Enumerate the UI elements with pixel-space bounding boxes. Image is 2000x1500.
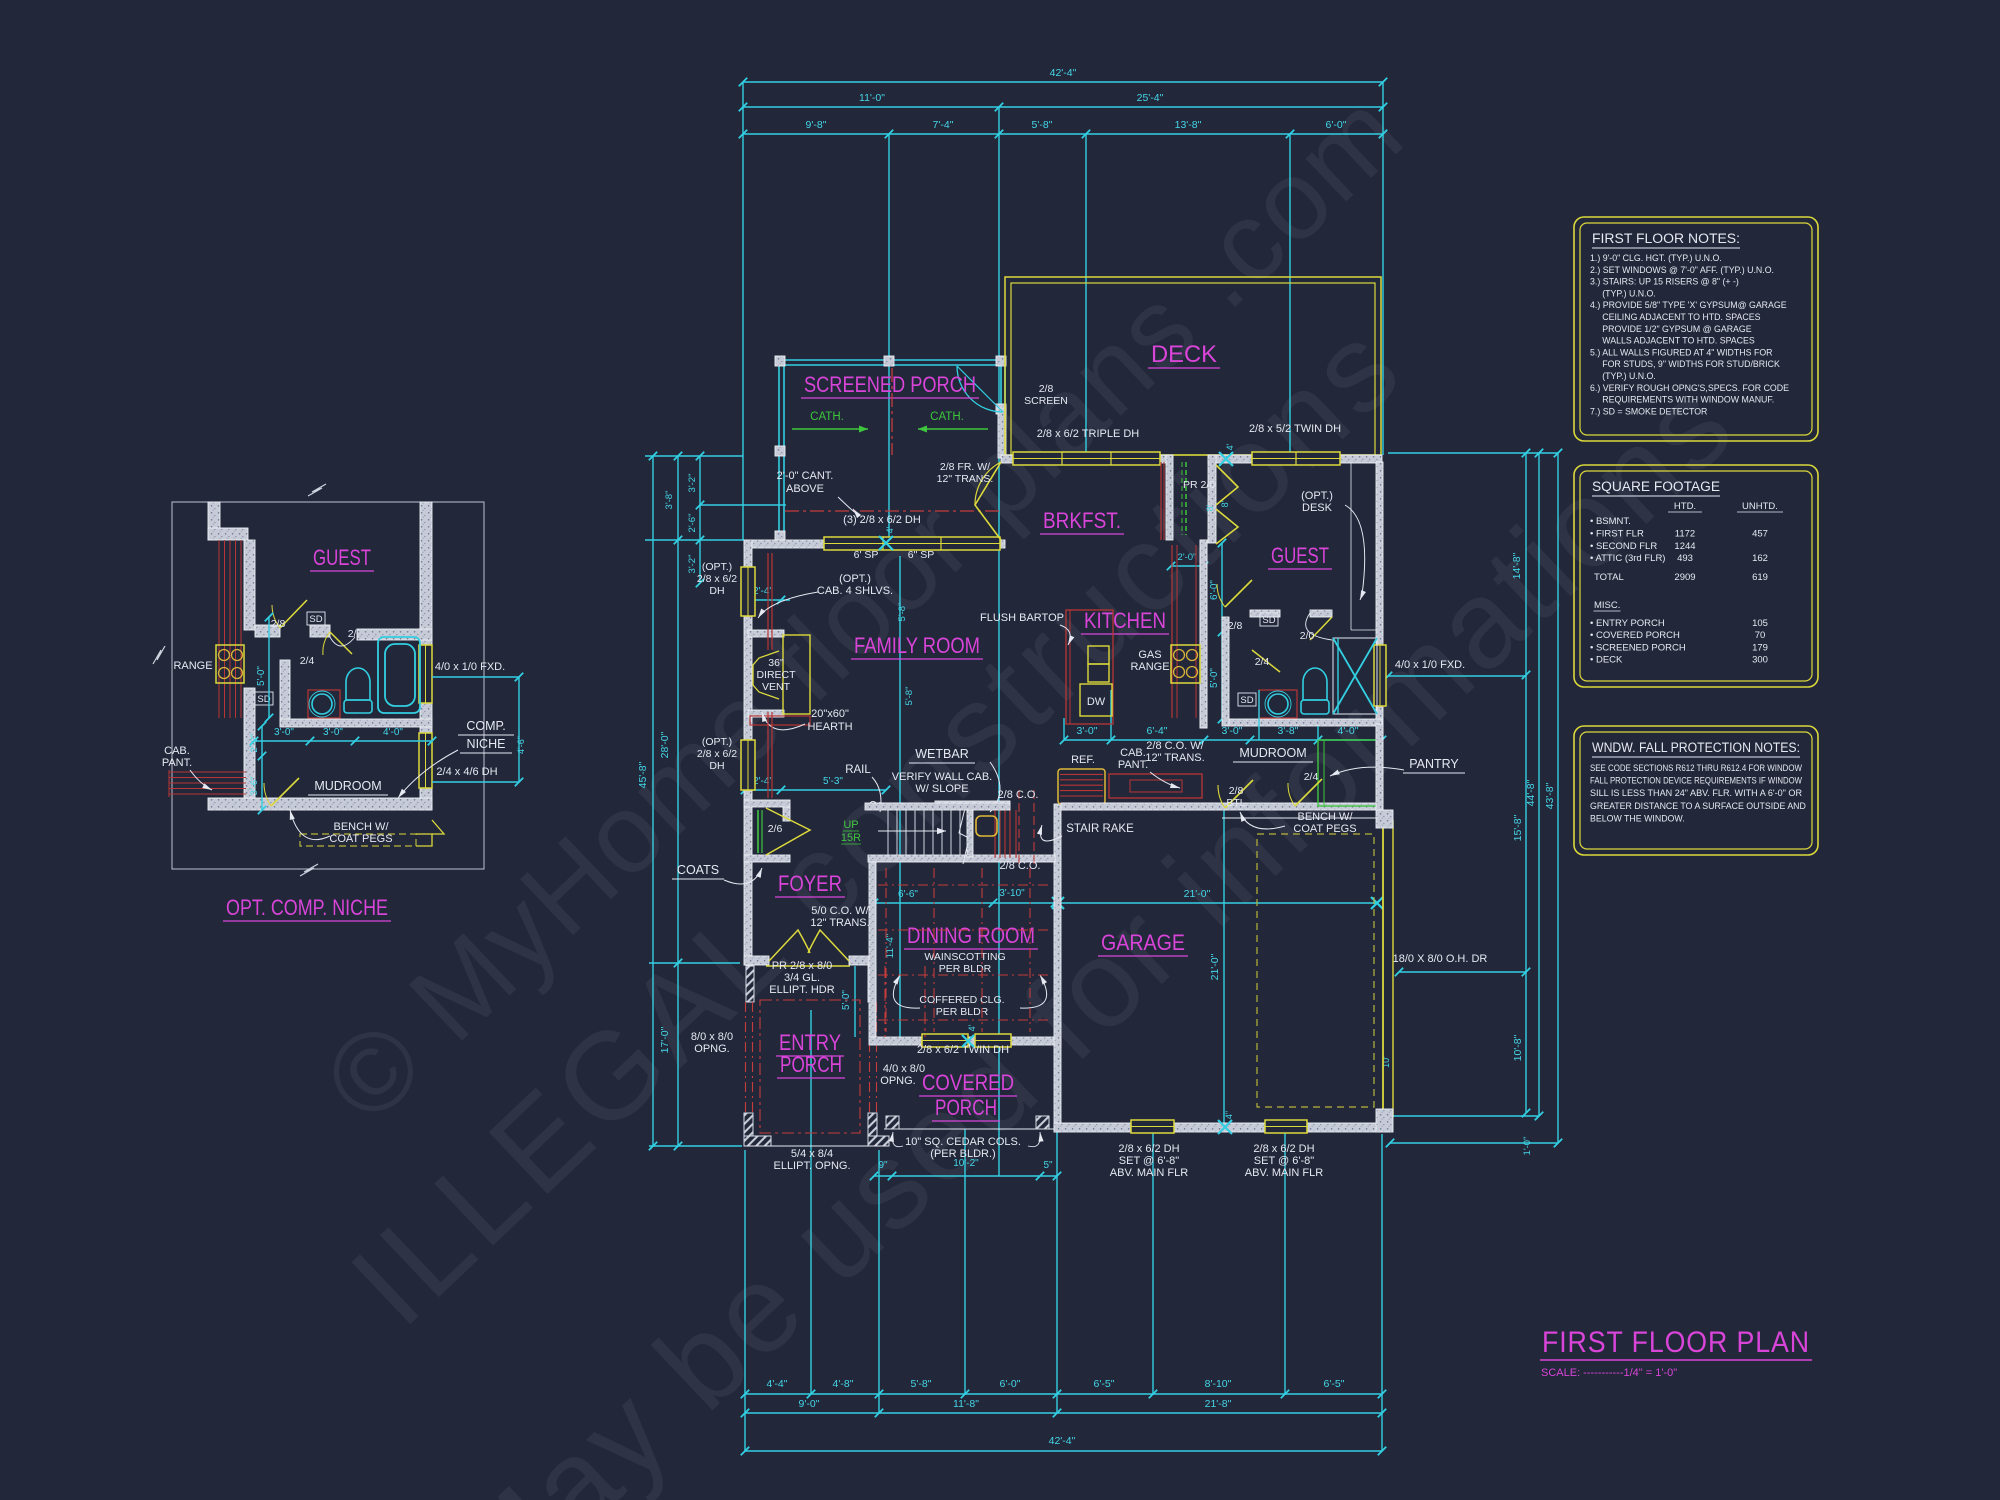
svg-text:1.) 9'-0" CLG. HGT. (TYP.) U.: 1.) 9'-0" CLG. HGT. (TYP.) U.N.O. — [1590, 253, 1722, 263]
svg-text:12" TRANS.: 12" TRANS. — [810, 917, 869, 929]
svg-text:105: 105 — [1752, 618, 1768, 629]
svg-text:9'-8": 9'-8" — [806, 119, 827, 131]
svg-text:SQUARE FOOTAGE: SQUARE FOOTAGE — [1592, 479, 1720, 494]
svg-text:FAMILY ROOM: FAMILY ROOM — [854, 633, 980, 658]
svg-text:• COVERED PORCH: • COVERED PORCH — [1590, 630, 1680, 641]
svg-text:(OPT.): (OPT.) — [702, 561, 732, 573]
svg-text:PANT.: PANT. — [1118, 759, 1148, 771]
svg-text:BRKFST.: BRKFST. — [1043, 508, 1121, 533]
svg-text:(OPT.): (OPT.) — [702, 736, 732, 748]
svg-text:2'-4": 2'-4" — [753, 776, 773, 787]
svg-text:(OPT.): (OPT.) — [1301, 490, 1333, 502]
svg-text:• SCREENED PORCH: • SCREENED PORCH — [1590, 642, 1686, 653]
svg-text:COMP.: COMP. — [466, 719, 505, 733]
svg-text:OPT. COMP. NICHE: OPT. COMP. NICHE — [226, 895, 388, 920]
svg-text:TOTAL: TOTAL — [1594, 572, 1624, 583]
svg-text:7.) SD = SMOKE DETECTOR: 7.) SD = SMOKE DETECTOR — [1590, 406, 1707, 416]
svg-text:8/0 x 8/0: 8/0 x 8/0 — [691, 1031, 733, 1043]
svg-text:STAIR RAKE: STAIR RAKE — [1066, 823, 1134, 835]
svg-text:5'-8": 5'-8" — [904, 687, 915, 706]
svg-text:WETBAR: WETBAR — [915, 747, 968, 761]
svg-text:9": 9" — [878, 1160, 888, 1171]
svg-text:WALLS ADJACENT TO HTD. SPACES: WALLS ADJACENT TO HTD. SPACES — [1590, 336, 1755, 346]
svg-text:6'-0": 6'-0" — [1000, 1378, 1021, 1390]
svg-text:• DECK: • DECK — [1590, 655, 1623, 666]
svg-text:2/8 x 6/2 DH: 2/8 x 6/2 DH — [1253, 1143, 1314, 1155]
svg-text:12" TRANS.: 12" TRANS. — [937, 473, 994, 485]
svg-text:DESK: DESK — [1302, 502, 1333, 514]
svg-text:5/0 C.O. W/: 5/0 C.O. W/ — [811, 905, 869, 917]
svg-text:3'-0": 3'-0" — [274, 727, 294, 738]
svg-text:FOR STUDS, 9" WIDTHS FOR STUD/: FOR STUDS, 9" WIDTHS FOR STUD/BRICK — [1590, 359, 1780, 369]
svg-text:2/8 x 6/2 TRIPLE DH: 2/8 x 6/2 TRIPLE DH — [1037, 428, 1140, 440]
svg-text:PR 2/0: PR 2/0 — [1183, 479, 1215, 491]
svg-text:PORCH: PORCH — [935, 1095, 997, 1120]
svg-text:4/0 x 1/0 FXD.: 4/0 x 1/0 FXD. — [435, 661, 505, 673]
svg-text:PANTRY: PANTRY — [1409, 757, 1459, 771]
svg-text:6' SP: 6' SP — [854, 549, 879, 561]
svg-text:CATH.: CATH. — [810, 411, 844, 423]
svg-text:COATS: COATS — [677, 863, 719, 877]
svg-text:ELLIPT. OPNG.: ELLIPT. OPNG. — [773, 1160, 850, 1172]
svg-text:(PER BLDR.): (PER BLDR.) — [930, 1148, 995, 1160]
svg-text:2/8: 2/8 — [1039, 383, 1054, 395]
svg-text:HTD.: HTD. — [1674, 501, 1696, 512]
svg-text:BENCH W/: BENCH W/ — [334, 821, 390, 833]
svg-text:SCREENED PORCH: SCREENED PORCH — [804, 372, 976, 397]
svg-text:300: 300 — [1752, 655, 1768, 666]
svg-text:4': 4' — [885, 526, 895, 533]
svg-text:CEILING ADJACENT TO HTD. SPACE: CEILING ADJACENT TO HTD. SPACES — [1590, 312, 1761, 322]
svg-text:6'-0": 6'-0" — [1326, 119, 1347, 131]
svg-text:2/4 x 4/6 DH: 2/4 x 4/6 DH — [436, 766, 497, 778]
svg-text:4/0 x 8/0: 4/0 x 8/0 — [883, 1063, 925, 1075]
svg-text:PORCH: PORCH — [780, 1052, 842, 1077]
svg-text:2'-0" CANT.: 2'-0" CANT. — [777, 470, 834, 482]
svg-text:SCREEN: SCREEN — [1024, 395, 1068, 407]
svg-text:GUEST: GUEST — [1271, 543, 1329, 568]
svg-text:5'-8": 5'-8" — [911, 1378, 932, 1390]
svg-text:6'-4": 6'-4" — [1147, 725, 1168, 737]
svg-text:2/4: 2/4 — [1255, 656, 1270, 668]
svg-text:WNDW. FALL PROTECTION NOTES:: WNDW. FALL PROTECTION NOTES: — [1592, 740, 1800, 755]
svg-text:3'-2": 3'-2" — [687, 555, 698, 574]
svg-text:ABV. MAIN FLR: ABV. MAIN FLR — [1110, 1167, 1189, 1179]
svg-text:3'-8": 3'-8" — [664, 491, 675, 510]
svg-text:VENT: VENT — [762, 681, 791, 693]
svg-text:9'-0": 9'-0" — [799, 1398, 820, 1410]
svg-text:5'-0": 5'-0" — [1209, 668, 1220, 688]
svg-text:5'-8": 5'-8" — [897, 603, 908, 622]
svg-text:2'-2": 2'-2" — [249, 734, 260, 753]
svg-text:4': 4' — [967, 1024, 977, 1031]
svg-text:4.) PROVIDE 5/8" TYPE 'X' GYPS: 4.) PROVIDE 5/8" TYPE 'X' GYPSUM@ GARAGE — [1590, 300, 1787, 310]
svg-text:FOYER: FOYER — [778, 871, 842, 896]
svg-text:10'-8": 10'-8" — [1512, 1034, 1524, 1061]
svg-text:DIRECT: DIRECT — [756, 669, 796, 681]
svg-text:BELOW THE WINDOW.: BELOW THE WINDOW. — [1590, 813, 1685, 823]
svg-text:OPNG.: OPNG. — [880, 1075, 915, 1087]
svg-text:42'-4": 42'-4" — [1049, 1435, 1076, 1447]
svg-text:ABOVE: ABOVE — [786, 483, 824, 495]
svg-text:SET @ 6'-8": SET @ 6'-8" — [1254, 1155, 1314, 1167]
svg-text:4'-4": 4'-4" — [767, 1378, 788, 1390]
svg-text:COFFERED CLG.: COFFERED CLG. — [919, 994, 1004, 1006]
svg-text:3'-0": 3'-0" — [1222, 725, 1243, 737]
svg-text:3.) STAIRS: UP 15 RISERS @ 8": 3.) STAIRS: UP 15 RISERS @ 8" (+ -) — [1590, 277, 1739, 287]
svg-text:2/8 C.O.: 2/8 C.O. — [1000, 860, 1041, 872]
svg-text:2/8 C.O.: 2/8 C.O. — [998, 789, 1039, 801]
svg-text:COAT PEGS: COAT PEGS — [1293, 823, 1356, 835]
svg-text:GREATER DISTANCE TO A SURFACE: GREATER DISTANCE TO A SURFACE OUTSIDE AN… — [1590, 801, 1806, 811]
svg-text:1244: 1244 — [1674, 541, 1695, 552]
svg-text:6'-5": 6'-5" — [1324, 1378, 1345, 1390]
svg-text:11'-8": 11'-8" — [953, 1398, 979, 1410]
svg-text:3'-6": 3'-6" — [249, 777, 260, 796]
svg-text:DINING ROOM: DINING ROOM — [907, 923, 1035, 948]
svg-text:3'-8": 3'-8" — [1278, 725, 1299, 737]
svg-text:2/4: 2/4 — [300, 655, 315, 667]
svg-text:SD: SD — [1262, 615, 1275, 626]
svg-text:RAIL: RAIL — [845, 764, 871, 776]
svg-text:CAB. 4 SHLVS.: CAB. 4 SHLVS. — [817, 585, 893, 597]
svg-text:11'-0": 11'-0" — [859, 92, 885, 104]
svg-text:2/8 x 5/2 TWIN DH: 2/8 x 5/2 TWIN DH — [1249, 423, 1341, 435]
svg-text:18/0 X 8/0 O.H. DR: 18/0 X 8/0 O.H. DR — [1393, 953, 1488, 965]
svg-text:42'-4": 42'-4" — [1050, 67, 1077, 79]
svg-text:2/8: 2/8 — [271, 618, 286, 630]
svg-text:457: 457 — [1752, 528, 1768, 539]
svg-text:179: 179 — [1752, 642, 1768, 653]
svg-text:PER BLDR: PER BLDR — [939, 963, 992, 975]
svg-text:UP: UP — [843, 819, 858, 831]
svg-text:KITCHEN: KITCHEN — [1084, 608, 1166, 633]
svg-text:• ENTRY PORCH: • ENTRY PORCH — [1590, 618, 1665, 629]
svg-text:7'-4": 7'-4" — [933, 119, 954, 131]
svg-text:HEARTH: HEARTH — [807, 721, 852, 733]
svg-text:2/0: 2/0 — [1300, 630, 1315, 642]
svg-text:4/0 x 1/0 FXD.: 4/0 x 1/0 FXD. — [1395, 659, 1465, 671]
svg-text:2/4: 2/4 — [1304, 771, 1319, 783]
svg-text:(TYP.) U.N.O.: (TYP.) U.N.O. — [1590, 288, 1656, 298]
svg-text:GAS: GAS — [1138, 649, 1161, 661]
svg-text:GARAGE: GARAGE — [1101, 930, 1185, 955]
svg-text:17'-0": 17'-0" — [659, 1026, 671, 1053]
svg-text:ABV. MAIN FLR: ABV. MAIN FLR — [1245, 1167, 1324, 1179]
svg-text:W/ SLOPE: W/ SLOPE — [915, 783, 968, 795]
svg-text:SCALE: -----------1/4" = 1'-0": SCALE: -----------1/4" = 1'-0" — [1541, 1367, 1677, 1379]
svg-text:6'-0": 6'-0" — [1209, 580, 1220, 600]
svg-text:3'-10": 3'-10" — [999, 888, 1025, 899]
svg-text:21'-8": 21'-8" — [1205, 1398, 1232, 1410]
svg-text:RANGE: RANGE — [173, 660, 212, 672]
svg-text:VERIFY WALL CAB.: VERIFY WALL CAB. — [892, 771, 992, 783]
svg-text:45'-8": 45'-8" — [637, 761, 649, 788]
svg-text:CATH.: CATH. — [930, 411, 964, 423]
svg-text:2'-0": 2'-0" — [1178, 552, 1197, 563]
svg-text:BTL: BTL — [1226, 797, 1245, 809]
svg-text:SD: SD — [309, 614, 322, 625]
svg-text:5'-8": 5'-8" — [1032, 119, 1053, 131]
svg-text:PR 2/8 x 8/0: PR 2/8 x 8/0 — [772, 960, 833, 972]
svg-text:6.) VERIFY ROUGH OPNG'S,SPECS.: 6.) VERIFY ROUGH OPNG'S,SPECS. FOR CODE — [1590, 383, 1789, 393]
svg-text:WAINSCOTTING: WAINSCOTTING — [924, 951, 1005, 963]
svg-text:MUDROOM: MUDROOM — [1239, 746, 1306, 760]
svg-text:44'-8": 44'-8" — [1525, 779, 1537, 806]
svg-text:2'-6": 2'-6" — [687, 514, 698, 533]
svg-text:36": 36" — [768, 657, 784, 669]
svg-text:162: 162 — [1752, 553, 1768, 564]
svg-text:5/4 x 8/4: 5/4 x 8/4 — [791, 1148, 833, 1160]
svg-text:28'-0": 28'-0" — [659, 731, 671, 758]
svg-text:• ATTIC (3rd FLR): • ATTIC (3rd FLR) — [1590, 553, 1665, 564]
svg-text:DECK: DECK — [1151, 341, 1217, 368]
svg-text:SET @ 6'-8": SET @ 6'-8" — [1119, 1155, 1179, 1167]
svg-text:15'-8": 15'-8" — [1512, 814, 1524, 841]
svg-text:2/6: 2/6 — [768, 823, 783, 835]
svg-text:8'-10": 8'-10" — [1205, 1378, 1232, 1390]
svg-text:2/8 x 6/2: 2/8 x 6/2 — [697, 748, 737, 760]
svg-text:DH: DH — [709, 585, 724, 597]
svg-text:10" SQ. CEDAR COLS.: 10" SQ. CEDAR COLS. — [905, 1136, 1021, 1148]
svg-text:493: 493 — [1677, 553, 1693, 564]
svg-text:SILL IS LESS THAN 24" ABV. FLR: SILL IS LESS THAN 24" ABV. FLR. WITH A 6… — [1590, 788, 1802, 798]
svg-text:2909: 2909 — [1674, 572, 1695, 583]
svg-text:1172: 1172 — [1675, 528, 1695, 539]
svg-text:• BSMNT.: • BSMNT. — [1590, 516, 1631, 527]
svg-text:4": 4" — [1224, 1111, 1234, 1119]
svg-text:2'-4": 2'-4" — [753, 586, 773, 597]
svg-text:1'-0": 1'-0" — [1522, 1137, 1533, 1156]
svg-text:(TYP.) U.N.O.: (TYP.) U.N.O. — [1590, 371, 1656, 381]
svg-text:FLUSH BARTOP: FLUSH BARTOP — [980, 612, 1064, 624]
svg-text:4'-0": 4'-0" — [383, 727, 403, 738]
svg-text:COAT PEGS: COAT PEGS — [329, 833, 392, 845]
svg-text:2/8 FR. W/: 2/8 FR. W/ — [940, 461, 990, 473]
svg-text:MISC.: MISC. — [1594, 600, 1620, 611]
svg-text:• SECOND FLR: • SECOND FLR — [1590, 541, 1657, 552]
svg-text:14'-8": 14'-8" — [1511, 552, 1523, 579]
svg-text:3'-2": 3'-2" — [687, 474, 698, 493]
svg-text:BENCH W/: BENCH W/ — [1298, 811, 1354, 823]
svg-text:FIRST FLOOR PLAN: FIRST FLOOR PLAN — [1542, 1326, 1810, 1359]
svg-text:SD: SD — [1240, 695, 1253, 706]
svg-text:6'-6": 6'-6" — [898, 889, 918, 900]
svg-text:RANGE: RANGE — [1130, 661, 1169, 673]
svg-text:COVERED: COVERED — [922, 1070, 1014, 1095]
svg-text:5'-3": 5'-3" — [823, 776, 843, 787]
svg-text:(3) 2/8 x 6/2 DH: (3) 2/8 x 6/2 DH — [843, 514, 921, 526]
svg-text:NICHE: NICHE — [467, 737, 506, 751]
svg-text:OPNG.: OPNG. — [694, 1043, 729, 1055]
svg-text:21'-0": 21'-0" — [1209, 953, 1221, 980]
svg-text:619: 619 — [1752, 572, 1768, 583]
svg-text:43'-8": 43'-8" — [1544, 782, 1556, 809]
svg-text:PER BLDR: PER BLDR — [936, 1006, 989, 1018]
svg-text:3'-0": 3'-0" — [1077, 725, 1098, 737]
svg-text:MUDROOM: MUDROOM — [314, 779, 381, 793]
svg-text:25'-4": 25'-4" — [1137, 92, 1164, 104]
svg-text:4': 4' — [1225, 443, 1235, 450]
svg-text:3'-0": 3'-0" — [323, 727, 343, 738]
svg-text:FIRST FLOOR NOTES:: FIRST FLOOR NOTES: — [1592, 231, 1740, 246]
svg-text:CAB.: CAB. — [164, 745, 190, 757]
svg-text:15R: 15R — [841, 832, 861, 844]
svg-text:2/8 x 6/2 DH: 2/8 x 6/2 DH — [1118, 1143, 1179, 1155]
svg-text:2/8: 2/8 — [1228, 620, 1243, 632]
svg-text:6" SP: 6" SP — [908, 549, 935, 561]
svg-text:ELLIPT. HDR: ELLIPT. HDR — [769, 984, 834, 996]
svg-text:• FIRST FLR: • FIRST FLR — [1590, 528, 1644, 539]
svg-text:(OPT.): (OPT.) — [839, 573, 871, 585]
svg-text:DW: DW — [1087, 696, 1106, 708]
svg-text:5": 5" — [1043, 1160, 1053, 1171]
svg-text:2/8: 2/8 — [1229, 785, 1244, 797]
svg-text:4'-6": 4'-6" — [516, 736, 526, 754]
svg-text:12" TRANS.: 12" TRANS. — [1145, 752, 1204, 764]
svg-text:PANT.: PANT. — [162, 757, 192, 769]
svg-text:21'-0": 21'-0" — [1184, 888, 1211, 900]
svg-text:11'-4": 11'-4" — [885, 933, 896, 958]
svg-text:REQUIREMENTS WITH WINDOW MANUF: REQUIREMENTS WITH WINDOW MANUF. — [1590, 395, 1774, 405]
svg-text:UNHTD.: UNHTD. — [1742, 501, 1778, 512]
svg-text:6'-5": 6'-5" — [1094, 1378, 1115, 1390]
svg-text:13'-8": 13'-8" — [1175, 119, 1202, 131]
svg-text:SEE CODE SECTIONS R612 THRU R6: SEE CODE SECTIONS R612 THRU R612.4 FOR W… — [1590, 763, 1803, 773]
svg-text:REF.: REF. — [1071, 754, 1095, 766]
svg-text:3/4 GL.: 3/4 GL. — [784, 972, 820, 984]
svg-text:2.) SET WINDOWS @ 7'-0" AFF. (: 2.) SET WINDOWS @ 7'-0" AFF. (TYP.) U.N.… — [1590, 265, 1774, 275]
svg-text:8': 8' — [1205, 504, 1215, 511]
svg-text:5.) ALL WALLS FIGURED AT 4" WI: 5.) ALL WALLS FIGURED AT 4" WIDTHS FOR — [1590, 347, 1773, 357]
svg-text:PROVIDE 1/2" GYPSUM @ GARAGE: PROVIDE 1/2" GYPSUM @ GARAGE — [1590, 324, 1752, 334]
svg-text:GUEST: GUEST — [313, 545, 371, 570]
svg-text:FALL PROTECTION DEVICE REQUIRE: FALL PROTECTION DEVICE REQUIREMENTS IF W… — [1590, 776, 1803, 786]
svg-text:20"x60": 20"x60" — [811, 708, 849, 720]
svg-text:2/8 C.O. W/: 2/8 C.O. W/ — [1146, 740, 1204, 752]
svg-text:4'-0": 4'-0" — [1338, 725, 1359, 737]
svg-text:2/8 x 6/2: 2/8 x 6/2 — [697, 573, 737, 585]
svg-text:70: 70 — [1755, 630, 1766, 641]
svg-text:4'-8": 4'-8" — [833, 1378, 854, 1390]
svg-text:5'-0": 5'-0" — [256, 666, 267, 686]
svg-text:CAB.: CAB. — [1120, 747, 1146, 759]
svg-text:DH: DH — [709, 760, 724, 772]
